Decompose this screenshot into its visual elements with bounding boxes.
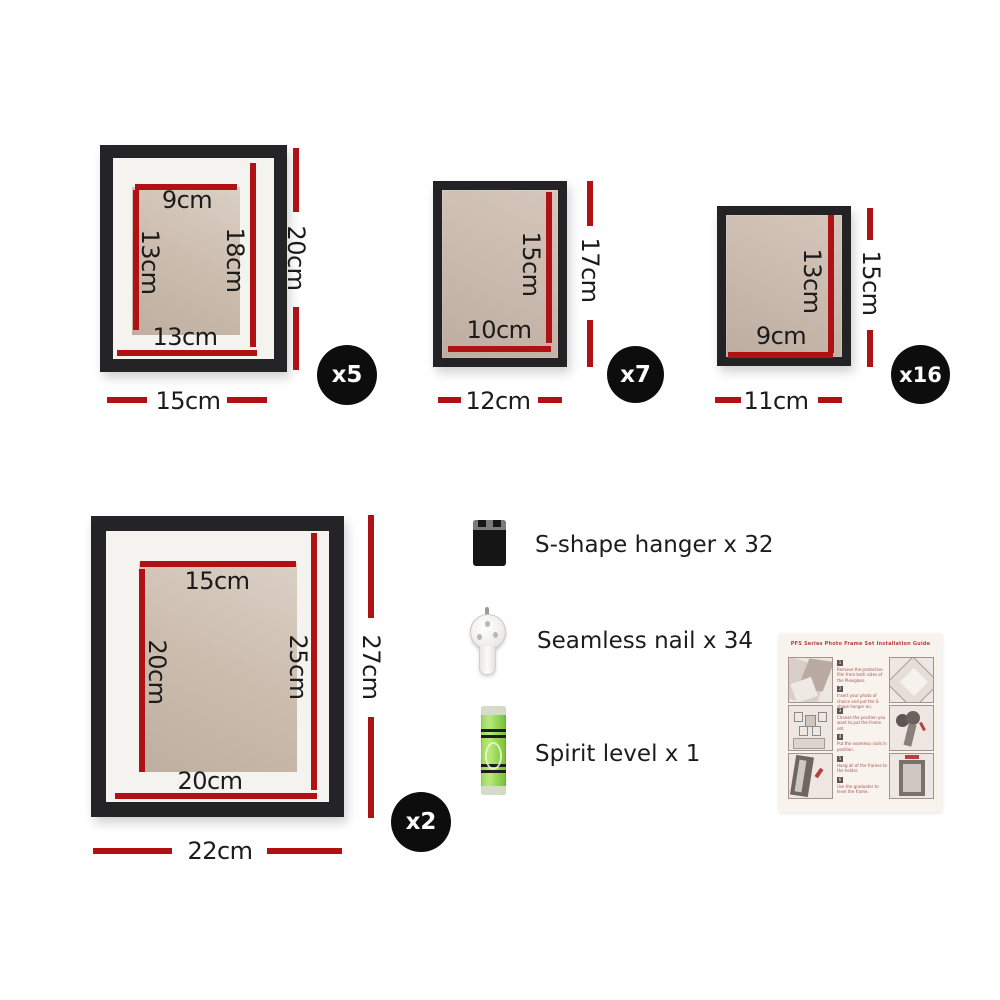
frame-group-11x15: 13cm 9cm 15cm 11cm [713,206,883,411]
accessory-label-nail: Seamless nail x 34 [537,628,753,654]
dim-label-photo-width: 9cm [756,324,806,348]
level-line [481,770,506,773]
dim-label-outer-width: 11cm [743,389,808,413]
step-number: 3 [837,708,843,714]
dim-label-outer-width: 15cm [155,389,220,413]
dim-dash [267,848,342,854]
guide-step-text: 5 Hang all of the frames to the holder. … [837,756,889,798]
dim-label-outer-width: 12cm [465,389,530,413]
sketch-shape [794,712,803,722]
count-badge-x7: x7 [607,346,664,403]
dim-dash [587,181,593,226]
sketch-shape [919,722,926,731]
step-number: 5 [837,756,843,762]
count-badge-x5: x5 [317,345,377,405]
level-line [481,729,506,732]
sketch-shape [903,723,916,746]
count-badge-x16: x16 [891,345,950,404]
dim-dash [107,397,147,403]
step-number: 2 [837,686,843,692]
guide-illustration-level-frame [889,753,934,799]
dim-dash [587,320,593,367]
dim-dash [93,848,172,854]
nail-stem [479,646,496,675]
count-badge-x2: x2 [391,792,451,852]
dim-label-photo-width: 10cm [466,318,531,342]
guide-step-text: 1 Remove the protective film from both s… [837,660,889,712]
sketch-shape [818,712,827,722]
nail-dot [477,634,482,640]
accessory-label-hanger: S-shape hanger x 32 [535,532,774,558]
installation-guide-sheet: PFS Series Photo Frame Set Installation … [779,634,942,812]
measure-line-opening-height [250,163,256,347]
dim-dash [293,148,299,212]
spirit-level-icon [481,706,506,795]
sketch-shape [793,738,825,749]
level-cap [481,706,506,715]
dim-dash [867,330,873,367]
dim-label-outer-height: 17cm [578,237,602,302]
step-text: Hang all of the frames to the holder. [837,763,889,774]
sketch-shape [814,768,823,778]
dim-dash [368,717,374,818]
measure-line-photo-height [546,192,552,343]
guide-illustration-hang-frame [788,753,833,799]
dim-label-photo-height: 20cm [145,639,169,704]
dim-label-outer-width: 22cm [187,839,252,863]
dim-label-photo-width: 9cm [162,188,212,212]
step-number: 6 [837,777,843,783]
sketch-shape [905,755,919,759]
dim-dash [368,515,374,618]
dim-label-photo-height: 13cm [800,248,824,313]
step-text: Remove the protective film from both sid… [837,667,889,683]
dim-dash [867,208,873,240]
guide-illustration-hammer-nail [889,705,934,751]
dim-dash [438,397,461,403]
step-text: Choose the position you want to put the … [837,715,889,731]
dim-label-opening-width: 13cm [152,325,217,349]
product-infographic: 9cm 13cm 18cm 13cm 20cm 15cm x5 15cm 10c… [0,0,1000,1000]
dim-dash [715,397,741,403]
guide-illustration-peel-film [788,657,833,703]
frame-group-22x27: 15cm 20cm 25cm 20cm 27cm 22cm [91,515,386,860]
sketch-shape [812,726,821,736]
step-text: Use the graduator to level the frame. [837,784,889,795]
dim-dash [818,397,842,403]
hanger-clip-top [473,520,506,530]
dim-label-outer-height: 27cm [359,634,383,699]
dim-label-photo-height: 13cm [138,229,162,294]
guide-step-text: 3 Choose the position you want to put th… [837,708,889,755]
measure-line-photo-width [728,352,833,358]
dim-label-opening-height: 18cm [223,227,247,292]
dim-label-photo-width: 15cm [184,569,249,593]
step-text: Put the seamless nails in position. [837,741,889,752]
step-number: 4 [837,734,843,740]
frame-group-15x20: 9cm 13cm 18cm 13cm 20cm 15cm [100,145,310,407]
measure-line-photo-height [828,215,834,353]
sketch-shape [903,764,921,792]
nail-head [470,614,506,650]
dim-label-outer-height: 15cm [859,250,883,315]
guide-illustration-insert-photo [889,657,934,703]
level-line [481,735,506,738]
dim-label-opening-height: 25cm [286,634,310,699]
seamless-nail-icon [468,606,508,676]
accessory-label-level: Spirit level x 1 [535,741,700,767]
level-cap [481,786,506,795]
dim-label-opening-width: 20cm [177,769,242,793]
sketch-shape [799,726,808,736]
dim-label-outer-height: 20cm [284,225,308,290]
dim-dash [293,307,299,370]
guide-illustration-wall-layout [788,705,833,751]
measure-line-photo-width [448,346,551,352]
frame-group-12x17: 15cm 10cm 17cm 12cm [433,181,608,411]
dim-dash [538,397,562,403]
level-bubble [485,742,502,770]
step-number: 1 [837,660,843,666]
guide-title: PFS Series Photo Frame Set Installation … [779,641,942,647]
dim-label-photo-height: 15cm [519,231,543,296]
dim-dash [227,397,267,403]
step-text: Insert your photo of choice and put the … [837,693,889,709]
s-shape-hanger-icon [473,520,506,566]
nail-dot [493,632,498,638]
nail-dot [485,621,490,627]
